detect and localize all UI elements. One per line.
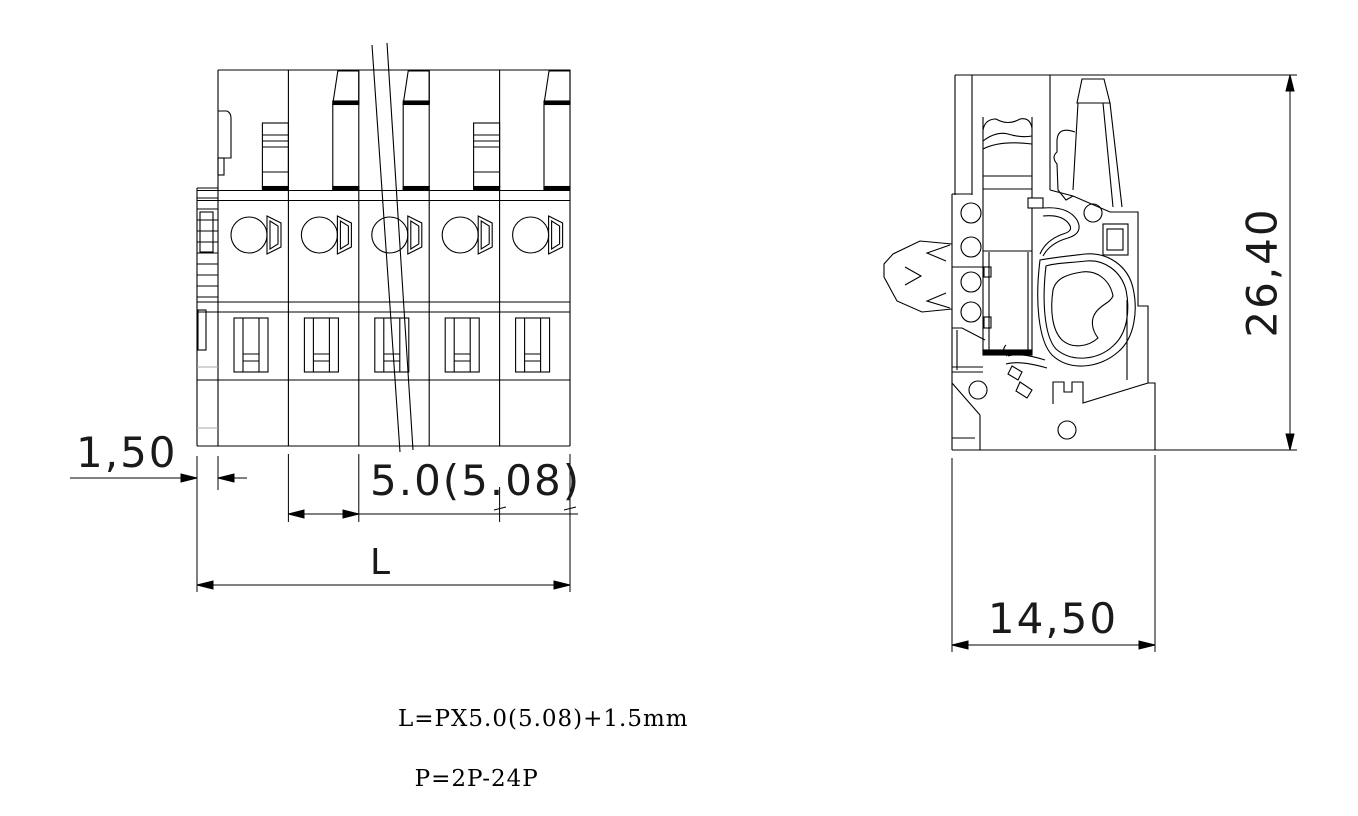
drawing-canvas: 1,50 5.0(5.08) L 26,40 14,50 L=PX5.0(5.0… <box>0 0 1358 816</box>
dim-pitch-label: 5.0(5.08) <box>370 456 581 505</box>
window-4 <box>445 318 479 372</box>
dim-depth-label: 14,50 <box>943 594 1163 643</box>
wire-hole-3 <box>372 216 422 254</box>
wire-hole-1 <box>231 216 281 254</box>
lever-pole1 <box>262 123 288 190</box>
plunger-channel <box>983 117 1043 355</box>
window-1 <box>234 318 268 372</box>
length-formula-notes: L=PX5.0(5.08)+1.5mm P=2P-24P <box>398 704 689 794</box>
front-view <box>197 43 570 452</box>
window-2 <box>304 318 338 372</box>
formula-line-1: L=PX5.0(5.08)+1.5mm <box>398 706 689 732</box>
lever-pole2 <box>333 71 359 190</box>
window-5 <box>516 318 550 372</box>
release-button <box>1054 79 1122 207</box>
technical-drawing <box>0 0 1358 816</box>
spring-clamp-cavity <box>1004 208 1135 398</box>
wire-hole-2 <box>301 216 351 254</box>
snap-clip <box>884 241 952 312</box>
formula-line-2: P=2P-24P <box>415 766 539 792</box>
dim-total-length-label: L <box>370 542 392 583</box>
side-view <box>884 75 1155 450</box>
lever-pole3 <box>403 71 429 190</box>
side-square-window <box>1103 224 1128 255</box>
side-lower-details <box>952 267 1148 450</box>
lever-pole5 <box>544 71 570 190</box>
dim-rail-offset-label: 1,50 <box>76 428 178 477</box>
dim-height-label: 26,40 <box>1238 173 1287 373</box>
wire-hole-4 <box>442 216 492 254</box>
wire-hole-5 <box>513 216 563 254</box>
lever-pole4 <box>474 123 500 190</box>
